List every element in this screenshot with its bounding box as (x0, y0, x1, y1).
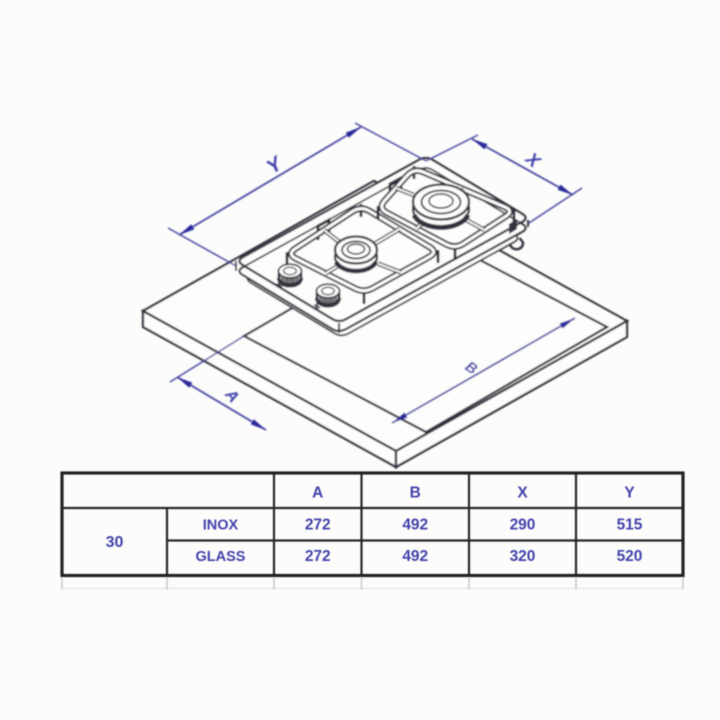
svg-text:B: B (410, 485, 421, 502)
svg-text:272: 272 (305, 548, 331, 565)
svg-text:290: 290 (510, 517, 536, 534)
svg-text:515: 515 (617, 517, 643, 534)
svg-text:492: 492 (402, 517, 428, 534)
svg-text:GLASS: GLASS (196, 549, 246, 565)
svg-text:A: A (312, 485, 323, 502)
svg-text:Y: Y (624, 485, 635, 502)
svg-text:X: X (517, 485, 528, 502)
svg-text:492: 492 (402, 548, 428, 565)
svg-text:INOX: INOX (203, 518, 239, 534)
svg-text:30: 30 (106, 534, 124, 551)
svg-text:520: 520 (617, 548, 643, 565)
svg-text:320: 320 (510, 548, 536, 565)
svg-text:272: 272 (305, 517, 331, 534)
